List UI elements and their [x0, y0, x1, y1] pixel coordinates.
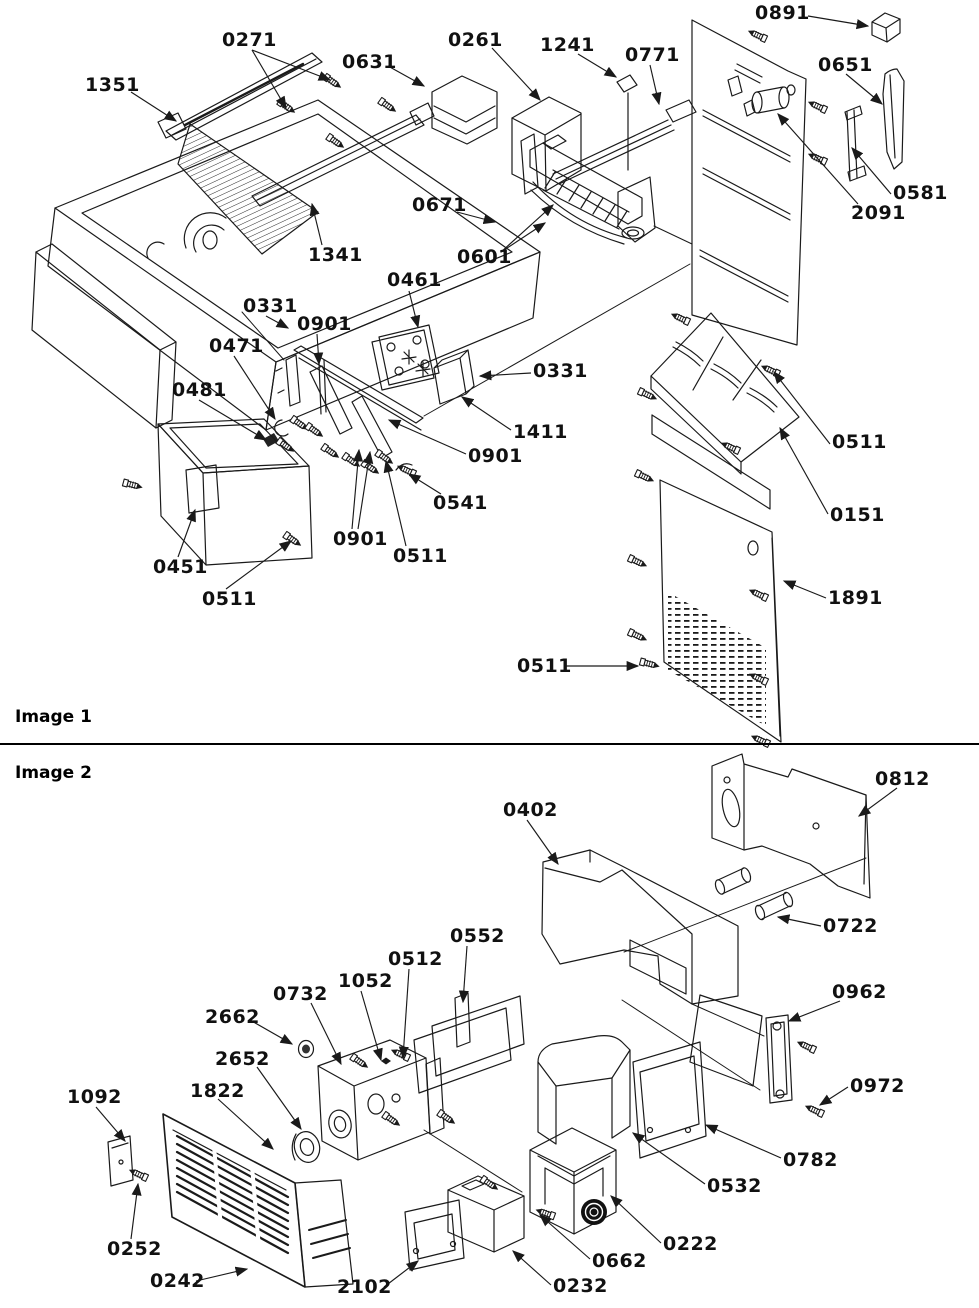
end-block — [434, 350, 474, 404]
vent-shelf — [652, 415, 770, 509]
leader-line-0891 — [808, 16, 868, 26]
leader-line-2102 — [384, 1261, 418, 1287]
leader-line-0962 — [789, 1001, 840, 1021]
grille-drawing — [108, 1114, 353, 1287]
leader-line-1411 — [462, 397, 511, 430]
leader-line-0481 — [199, 400, 266, 440]
leader-line-0732 — [311, 1003, 341, 1064]
leader-line-0242 — [196, 1269, 247, 1281]
control-harness-drawing — [263, 325, 474, 470]
leader-line-1092 — [96, 1107, 125, 1141]
leader-line-1891 — [784, 581, 826, 598]
leader-line-0222 — [611, 1196, 661, 1243]
leader-line-0972 — [820, 1087, 848, 1105]
leader-line-0901 — [389, 420, 466, 454]
cap-cube — [872, 13, 900, 42]
leader-line-0601 — [501, 223, 545, 252]
leader-line-0541 — [409, 474, 441, 494]
leader-line-0722 — [778, 917, 821, 926]
ice-maker-assembly-drawing — [432, 75, 696, 244]
motor-housing-drawing — [291, 993, 524, 1165]
alignment-lines-1 — [242, 226, 692, 416]
section-title-image2: Image 2 — [15, 763, 92, 783]
leader-line-0331 — [266, 316, 288, 328]
chute-drawing — [405, 1128, 616, 1270]
leader-line-0252 — [131, 1184, 138, 1239]
leader-line-0461 — [409, 291, 418, 327]
leader-line-0402 — [527, 820, 558, 864]
side-plate — [108, 1136, 133, 1186]
leader-line-0511 — [226, 541, 291, 589]
leader-line-0512 — [403, 969, 409, 1058]
vent-cover-drawing — [651, 313, 799, 509]
leader-line-0901 — [317, 334, 319, 364]
leader-line-0232 — [513, 1251, 551, 1285]
access-panel-drawing — [660, 480, 781, 742]
leader-line-1341 — [312, 204, 322, 245]
leader-line-0532 — [633, 1133, 705, 1184]
leader-line-0271 — [252, 50, 330, 80]
duct-cluster-drawing — [538, 995, 762, 1158]
leader-line-0331 — [480, 373, 531, 376]
auger-mount-drawing — [542, 850, 794, 1103]
leader-line-2662 — [250, 1020, 292, 1044]
parts-diagram-page: Image 1 Image 2 089102710261124107710651… — [0, 0, 979, 1308]
fill-tube — [553, 120, 674, 184]
diagram-artwork — [0, 0, 979, 1308]
leader-line-0771 — [650, 65, 659, 104]
leader-line-1241 — [578, 54, 616, 77]
leader-line-0662 — [540, 1215, 590, 1259]
trim-strip — [883, 69, 904, 169]
leader-line-1822 — [218, 1099, 273, 1149]
leader-line-2091 — [778, 114, 858, 204]
leader-line-0601 — [501, 205, 553, 252]
solenoid — [372, 325, 439, 390]
section-divider — [0, 743, 979, 745]
leader-line-0271 — [252, 50, 286, 108]
mount-bracket-drawing — [712, 754, 870, 898]
leader-line-0151 — [780, 428, 828, 514]
leader-line-0261 — [492, 48, 540, 100]
leader-line-0782 — [706, 1125, 781, 1158]
leader-line-0812 — [859, 788, 897, 816]
step-bracket — [448, 1176, 524, 1252]
leader-line-0581 — [852, 148, 891, 194]
leader-line-0651 — [846, 74, 882, 104]
leader-line-0471 — [234, 356, 275, 419]
leader-line-0631 — [388, 66, 424, 86]
section-title-image1: Image 1 — [15, 707, 92, 727]
screws-image2 — [127, 1039, 824, 1220]
rear-panel-drawing — [692, 13, 904, 345]
leader-line-0511 — [386, 461, 406, 546]
leader-line-2652 — [257, 1067, 301, 1129]
leader-line-1351 — [131, 92, 176, 121]
